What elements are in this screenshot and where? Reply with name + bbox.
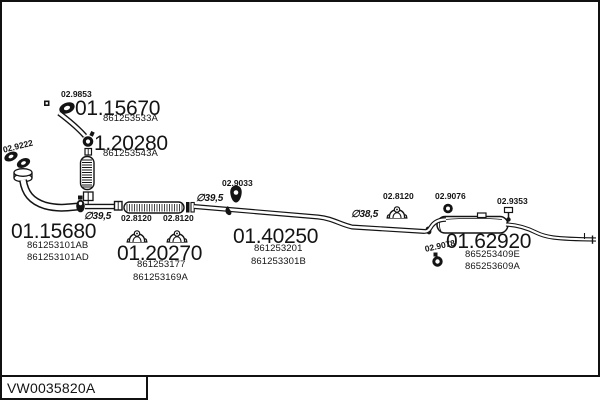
- bolt-nut-icon: [44, 101, 50, 107]
- catalog-code-box: VW0035820A: [0, 375, 148, 400]
- bottom-hanger-ring-icon: [432, 253, 442, 267]
- diameter-label: ∅38,5: [351, 210, 378, 220]
- part-ref: 861253533A: [103, 114, 158, 124]
- part-ref: 865253609A: [465, 262, 520, 272]
- exhaust-system-drawing: [0, 0, 600, 377]
- fitting-code: 02.8120: [383, 192, 414, 201]
- pipe-clamp-icon: [167, 231, 188, 242]
- pipe-clamp-icon: [387, 207, 408, 218]
- part-ref: 861253169A: [133, 273, 188, 283]
- flex-pipe-vertical-drawing: [81, 149, 95, 207]
- part-ref: 861253301B: [251, 257, 306, 267]
- diameter-label: ∅39,5: [84, 212, 111, 222]
- part-ref: 861253177: [137, 260, 185, 270]
- part-ref: 865253409E: [465, 250, 520, 260]
- part-ref: 861253101AB: [27, 241, 88, 251]
- hanger-ring-icon: [443, 204, 453, 214]
- fitting-code: 02.9353: [497, 197, 528, 206]
- catalog-code: VW0035820A: [2, 380, 95, 396]
- parts-diagram-page: 01.15670 861253533A 1.20280 861253543A 0…: [0, 0, 600, 400]
- part-ref: 861253543A: [103, 149, 158, 159]
- downpipe-drawing: [14, 169, 116, 213]
- part-number: 01.15680: [11, 221, 96, 242]
- pipe-clamp-icon: [127, 231, 148, 242]
- part-ref: 861253201: [254, 244, 302, 254]
- diameter-label: ∅39,5: [196, 194, 223, 204]
- part-ref: 861253101AD: [27, 253, 89, 263]
- fitting-code: 02.9853: [61, 90, 92, 99]
- flex-pipe-horizontal-drawing: [115, 202, 195, 214]
- fitting-code: 02.9033: [222, 179, 253, 188]
- fitting-code: 02.8120: [121, 214, 152, 223]
- fitting-code: 02.8120: [163, 214, 194, 223]
- fitting-code: 02.9076: [435, 192, 466, 201]
